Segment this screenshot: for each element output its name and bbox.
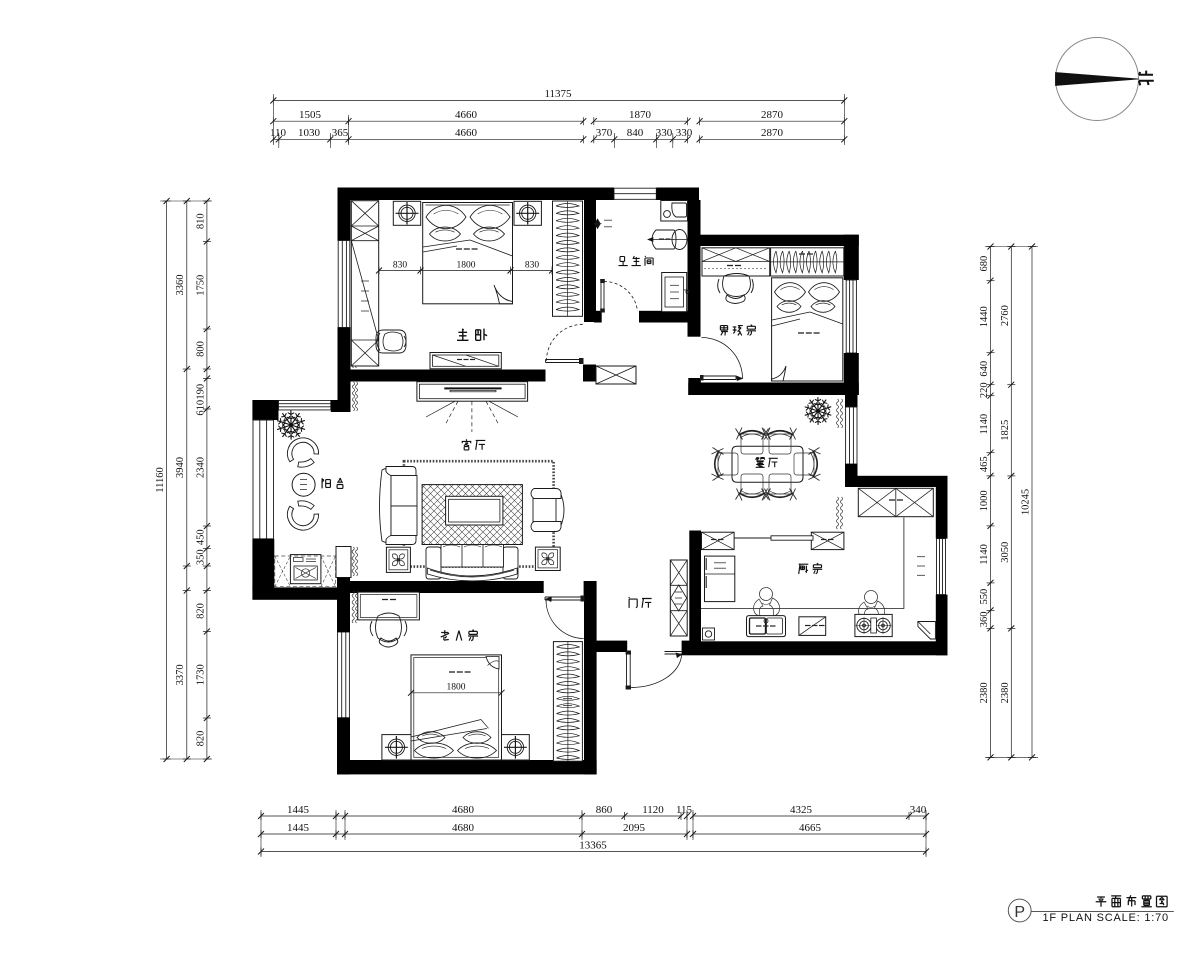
svg-text:820: 820 <box>195 731 206 747</box>
svg-text:550: 550 <box>979 589 990 605</box>
svg-text:1800: 1800 <box>457 261 476 271</box>
svg-text:830: 830 <box>393 261 408 271</box>
svg-text:1140: 1140 <box>979 544 990 565</box>
svg-text:365: 365 <box>332 127 349 139</box>
svg-text:330: 330 <box>656 127 673 139</box>
svg-text:1120: 1120 <box>642 804 664 816</box>
svg-text:2870: 2870 <box>761 109 784 121</box>
svg-text:115: 115 <box>676 804 693 816</box>
svg-text:2095: 2095 <box>623 822 646 834</box>
svg-text:4665: 4665 <box>799 822 822 834</box>
svg-text:1030: 1030 <box>298 127 321 139</box>
svg-text:1505: 1505 <box>299 109 322 121</box>
svg-text:2870: 2870 <box>761 127 784 139</box>
svg-text:13365: 13365 <box>579 840 607 852</box>
svg-text:4325: 4325 <box>790 804 813 816</box>
svg-text:330: 330 <box>676 127 693 139</box>
svg-text:P: P <box>1014 904 1025 921</box>
svg-text:4660: 4660 <box>455 127 478 139</box>
svg-text:110: 110 <box>270 127 287 139</box>
svg-text:2760: 2760 <box>1000 305 1011 326</box>
svg-text:3050: 3050 <box>1000 542 1011 563</box>
svg-text:1000: 1000 <box>979 490 990 511</box>
svg-text:4660: 4660 <box>455 109 478 121</box>
svg-text:1445: 1445 <box>287 822 310 834</box>
svg-text:1730: 1730 <box>195 664 206 685</box>
svg-text:11375: 11375 <box>544 88 572 100</box>
svg-text:1140: 1140 <box>979 414 990 435</box>
svg-text:680: 680 <box>979 256 990 272</box>
svg-text:370: 370 <box>596 127 613 139</box>
svg-text:350: 350 <box>195 549 206 565</box>
svg-text:4680: 4680 <box>452 822 475 834</box>
svg-text:2380: 2380 <box>1000 682 1011 703</box>
svg-text:450: 450 <box>195 529 206 545</box>
svg-text:220: 220 <box>979 382 990 398</box>
svg-text:2340: 2340 <box>195 457 206 478</box>
svg-text:840: 840 <box>627 127 644 139</box>
svg-text:810: 810 <box>195 213 206 229</box>
svg-text:1750: 1750 <box>195 275 206 296</box>
svg-text:1F PLAN SCALE: 1:70: 1F PLAN SCALE: 1:70 <box>1043 912 1169 924</box>
svg-text:3360: 3360 <box>175 275 186 296</box>
svg-text:465: 465 <box>979 456 990 472</box>
svg-text:340: 340 <box>910 804 927 816</box>
svg-text:1445: 1445 <box>287 804 310 816</box>
svg-text:4680: 4680 <box>452 804 475 816</box>
svg-text:1800: 1800 <box>447 683 466 693</box>
svg-text:1870: 1870 <box>629 109 652 121</box>
svg-text:1825: 1825 <box>1000 420 1011 441</box>
svg-text:820: 820 <box>195 603 206 619</box>
svg-text:3370: 3370 <box>175 664 186 685</box>
svg-text:1440: 1440 <box>979 306 990 327</box>
svg-text:10245: 10245 <box>1021 489 1032 515</box>
svg-text:640: 640 <box>979 361 990 377</box>
svg-text:610: 610 <box>195 400 206 416</box>
svg-text:11160: 11160 <box>155 467 166 492</box>
svg-text:830: 830 <box>525 261 540 271</box>
svg-text:2380: 2380 <box>979 682 990 703</box>
svg-text:800: 800 <box>195 341 206 357</box>
svg-text:860: 860 <box>596 804 613 816</box>
svg-text:3940: 3940 <box>175 457 186 478</box>
svg-text:360: 360 <box>979 612 990 628</box>
svg-text:190: 190 <box>195 384 206 400</box>
